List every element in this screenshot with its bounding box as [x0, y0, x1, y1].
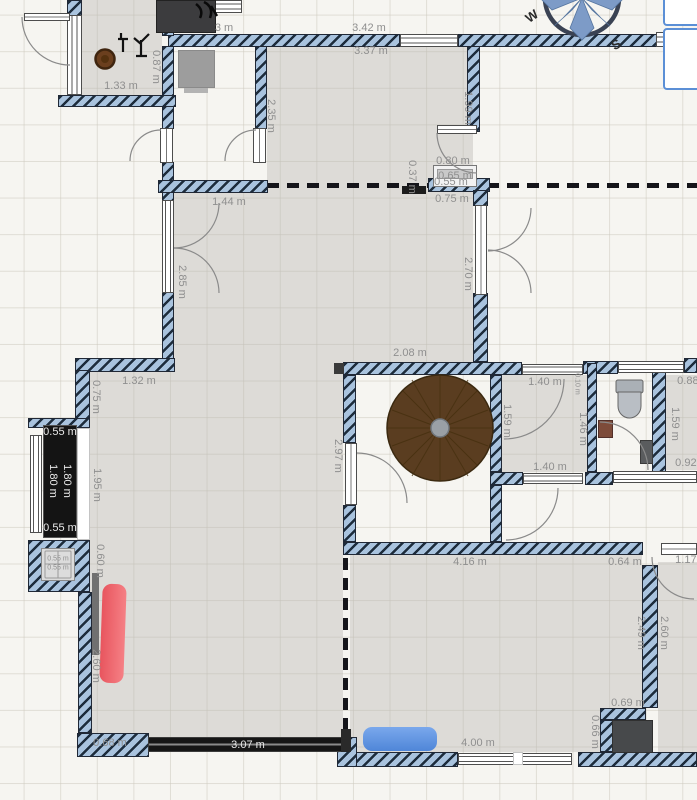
room-hall-strip[interactable]: [174, 364, 343, 372]
wall-stair-west-upper[interactable]: [343, 375, 356, 443]
sink-brown-wc[interactable]: [598, 420, 613, 438]
room-right-edge[interactable]: [666, 375, 697, 470]
kitchen-counter[interactable]: [43, 425, 77, 538]
wall-french-bottom[interactable]: [473, 293, 488, 362]
window-wc-south[interactable]: [613, 471, 697, 483]
door-arc-corridor: [506, 488, 558, 540]
window-nook-west[interactable]: [30, 435, 42, 533]
door-arc-french-top: [488, 208, 531, 251]
wall-french-top[interactable]: [473, 190, 488, 206]
wall-roomC-bottom[interactable]: [158, 180, 268, 193]
dimension-label: 3.42 m: [352, 22, 386, 34]
wall-living-west-upper[interactable]: [75, 370, 90, 420]
wall-end-dark-2: [341, 729, 351, 752]
wall-corridor-west[interactable]: [490, 485, 502, 542]
sliding-door-handle[interactable]: [513, 752, 523, 765]
room-hall[interactable]: [174, 193, 473, 364]
door-leaf-roomD[interactable]: [437, 125, 477, 134]
wall-bottom-south-right[interactable]: [578, 752, 697, 767]
room-closet[interactable]: [502, 375, 587, 472]
wall-top-main-right[interactable]: [458, 34, 658, 47]
wall-left-mid-1[interactable]: [162, 106, 174, 129]
wall-living-west-lower[interactable]: [78, 592, 92, 733]
cabinet-gray[interactable]: [178, 50, 215, 88]
dimension-label: 3 m: [215, 22, 233, 34]
door-leaf-entry[interactable]: [24, 13, 70, 21]
window-top-edge[interactable]: [214, 0, 242, 13]
side-panel-top[interactable]: [663, 0, 697, 26]
wall-bottom-middle-top[interactable]: [343, 542, 643, 555]
room-divider-dashed-vertical[interactable]: [343, 558, 348, 737]
sofa-red[interactable]: [99, 584, 126, 684]
wall-living-nw[interactable]: [75, 358, 175, 372]
wall-stair-top[interactable]: [343, 362, 522, 375]
wall-roomA-bottom[interactable]: [58, 95, 176, 107]
room-living[interactable]: [90, 372, 343, 737]
wall-north-small-2[interactable]: [684, 358, 697, 373]
wall-roomD-right[interactable]: [467, 46, 480, 132]
wall-closet-wc-divider[interactable]: [587, 363, 597, 472]
door-jamb-roomC-west[interactable]: [160, 128, 173, 163]
room-bottom-right-strip[interactable]: [658, 562, 697, 752]
window-closet-south[interactable]: [523, 473, 583, 484]
wall-roomA-right[interactable]: [162, 46, 174, 96]
door-arc-roomC-west: [130, 130, 161, 161]
wall-wc-east[interactable]: [652, 363, 666, 472]
window-wc-north[interactable]: [618, 361, 684, 373]
door-jamb-roomC-east[interactable]: [253, 128, 266, 163]
cabinet-gray-tab: [184, 88, 208, 93]
vent-black-bar[interactable]: [402, 186, 426, 194]
toilet[interactable]: [616, 380, 643, 418]
door-arc-entry: [22, 17, 70, 65]
stove-bottom-right[interactable]: [612, 720, 653, 753]
wall-closet-south-2[interactable]: [585, 472, 613, 485]
door-arc-roomC: [225, 130, 256, 161]
door-arc-stair: [357, 453, 407, 503]
floor-plan-canvas: W S 1.33 m0.87 m3 m3.42 m3.37 m2.35 m1.9…: [0, 0, 697, 800]
door-jamb-french[interactable]: [475, 205, 487, 295]
wall-end-dark-1: [334, 363, 344, 374]
wall-closet-west[interactable]: [490, 375, 502, 472]
window-top-main[interactable]: [400, 34, 458, 47]
wall-living-sw-corner[interactable]: [77, 733, 149, 757]
sofa-blue[interactable]: [363, 727, 437, 751]
wall-top-main-left[interactable]: [168, 34, 400, 47]
wall-stair-west-lower[interactable]: [343, 505, 356, 542]
wall-bottom-south-left[interactable]: [340, 752, 458, 767]
wall-niche-top[interactable]: [600, 708, 646, 720]
radiator[interactable]: [92, 573, 99, 655]
door-arc-french-bottom: [488, 250, 531, 293]
wall-closet-south-1[interactable]: [490, 472, 523, 485]
compass-west-label: W: [522, 6, 541, 26]
window-roomA-west[interactable]: [67, 15, 82, 95]
stove[interactable]: [41, 548, 75, 581]
wall-bottom-right-east[interactable]: [642, 565, 658, 708]
room-bottom-middle[interactable]: [350, 555, 642, 752]
room-top-left[interactable]: [82, 0, 162, 95]
sliding-glass-door-living[interactable]: [148, 737, 345, 752]
door-jamb-stair[interactable]: [345, 443, 357, 505]
door-jamb-bottom-right[interactable]: [661, 543, 697, 555]
wall-roomC-divider[interactable]: [255, 46, 267, 129]
window-hall-west-doorway[interactable]: [162, 200, 174, 293]
shelf-unit-inner: [437, 169, 473, 179]
window-closet-north[interactable]: [522, 364, 583, 375]
spiral-staircase[interactable]: [387, 375, 493, 481]
side-panel-tool[interactable]: [663, 28, 697, 90]
appliance-dark-top[interactable]: [156, 0, 216, 33]
opening-counter-pass[interactable]: [77, 428, 90, 540]
fixture-dark-wc[interactable]: [640, 440, 653, 464]
